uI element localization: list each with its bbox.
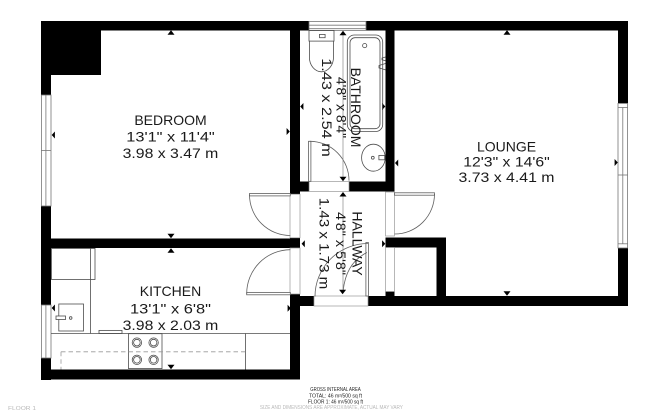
svg-text:12'3" x 14'6": 12'3" x 14'6" [463,154,550,170]
svg-text:LOUNGE: LOUNGE [477,138,536,154]
svg-text:BEDROOM: BEDROOM [134,112,206,128]
svg-text:3.98 x 3.47 m: 3.98 x 3.47 m [123,145,219,161]
svg-text:HALLWAY: HALLWAY [349,211,365,276]
svg-text:GROSS INTERNAL AREA: GROSS INTERNAL AREA [310,387,361,393]
svg-text:1.43 x 2.54 m: 1.43 x 2.54 m [319,58,335,157]
svg-text:3.73 x 4.41 m: 3.73 x 4.41 m [459,169,555,185]
svg-text:1.43 x 1.73 m: 1.43 x 1.73 m [317,198,333,290]
svg-text:FLOOR 1: FLOOR 1 [8,406,36,412]
svg-text:SIZE AND DIMENSIONS ARE APPROX: SIZE AND DIMENSIONS ARE APPROXIMATE, ACT… [260,405,403,411]
svg-text:3.98 x 2.03 m: 3.98 x 2.03 m [123,317,219,333]
svg-text:TOTAL: 46 m²/500 sq ft: TOTAL: 46 m²/500 sq ft [309,393,363,399]
svg-text:4'8" x 5'8": 4'8" x 5'8" [333,212,349,275]
svg-text:13'1" x 6'8": 13'1" x 6'8" [130,301,211,317]
svg-text:KITCHEN: KITCHEN [140,283,201,299]
svg-text:13'1" x 11'4": 13'1" x 11'4" [126,128,215,144]
